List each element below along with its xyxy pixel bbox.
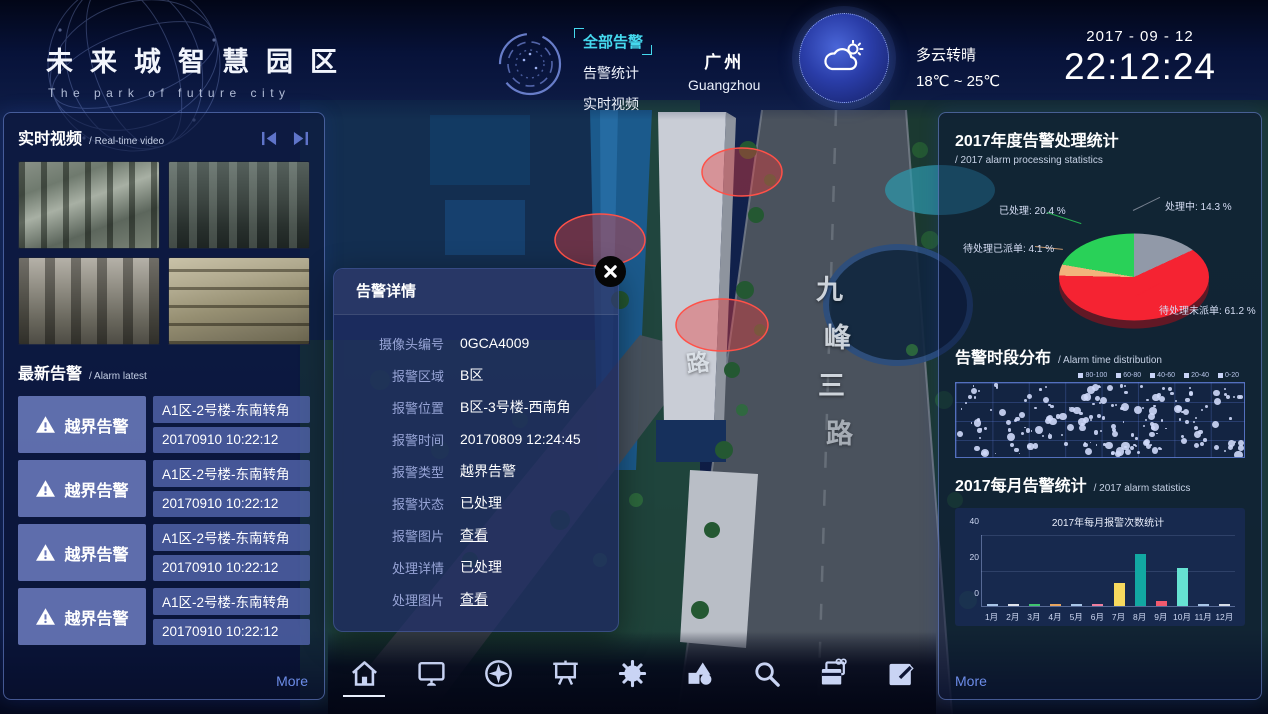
radar-rings-icon: [496, 30, 564, 98]
screen-button[interactable]: [541, 646, 589, 700]
scatter-legend-item: 20-40: [1184, 372, 1209, 379]
bar-x-labels: 1月2月3月4月5月6月7月8月9月10月11月12月: [981, 611, 1235, 623]
bar: [1198, 604, 1209, 606]
warning-icon: [35, 607, 56, 626]
left-panel: 实时视频 / Real-time video 最新告警 / Alarm la: [3, 112, 325, 700]
video-thumbnail[interactable]: [18, 257, 160, 345]
skip-next-icon: [291, 131, 310, 146]
pie-section-title: 2017年度告警处理统计: [955, 127, 1119, 151]
modal-field-label: 处理详情: [350, 558, 444, 577]
weather-text: 多云转晴 18℃ ~ 25℃: [916, 44, 1000, 90]
weather-temperature: 18℃ ~ 25℃: [916, 72, 1000, 90]
alarm-section-subtitle: / Alarm latest: [89, 371, 147, 382]
gear-icon: [617, 658, 648, 689]
modal-field-value: B区: [460, 365, 483, 385]
city-name-en: Guangzhou: [688, 77, 760, 93]
scatter-section-title: 告警时段分布: [955, 344, 1051, 368]
pie-label: 待处理未派单: 61.2 %: [1159, 302, 1256, 317]
scatter-section-subtitle: / Alarm time distribution: [1058, 355, 1162, 366]
bar: [1135, 554, 1146, 606]
shapes-button[interactable]: [675, 646, 723, 700]
monitor-icon: [416, 658, 447, 689]
bar-ytick: 0: [963, 588, 979, 598]
modal-field-label: 报警类型: [350, 462, 444, 481]
gear-button[interactable]: [608, 646, 656, 700]
bar-plot: [981, 535, 1235, 607]
bar-section-title: 2017每月告警统计: [955, 472, 1087, 496]
shapes-icon: [684, 658, 715, 689]
alarm-item[interactable]: 越界告警A1区-2号楼-东南转角20170910 10:22:12: [18, 524, 310, 581]
video-grid: [18, 161, 310, 345]
city-name-cn: 广州: [688, 48, 760, 73]
warning-icon: [35, 543, 56, 562]
weather-condition: 多云转晴: [916, 44, 1000, 65]
pie-label: 已处理: 20.4 %: [999, 202, 1066, 217]
app-title: 未来城智慧园区: [46, 40, 354, 79]
edit-icon: [885, 658, 916, 689]
bar: [1177, 568, 1188, 606]
close-icon: [604, 265, 617, 278]
nav-item-realtime-video[interactable]: 实时视频: [574, 91, 648, 117]
alarm-type: 越界告警: [18, 524, 146, 581]
bar: [1092, 604, 1103, 606]
modal-field-label: 报警图片: [350, 526, 444, 545]
scatter-legend-item: 80-100: [1078, 372, 1107, 379]
warning-icon: [35, 415, 56, 434]
weather-badge: [799, 13, 889, 103]
bar: [1156, 601, 1167, 606]
alarm-type: 越界告警: [18, 588, 146, 645]
alarm-more-link[interactable]: More: [276, 673, 308, 689]
nav-item-all-alarms[interactable]: 全部告警: [574, 28, 652, 55]
video-section-subtitle: / Real-time video: [89, 136, 164, 147]
home-icon: [349, 658, 380, 689]
scatter-legend: 80-10060-8040-6020-400-20: [955, 372, 1239, 379]
bar-ytick: 20: [963, 552, 979, 562]
search-icon: [751, 658, 782, 689]
bar-chart: 2017年每月报警次数统计 40 20 0 1月2月3月4月5月6月7月8月9月…: [955, 508, 1245, 626]
road-label-side: 路: [684, 343, 712, 380]
road-label-char: 九: [816, 268, 843, 307]
cards-button[interactable]: [809, 646, 857, 700]
view-link[interactable]: 查看: [460, 589, 488, 609]
alarm-type: 越界告警: [18, 460, 146, 517]
scatter-legend-item: 40-60: [1150, 372, 1175, 379]
compass-icon: [483, 658, 514, 689]
modal-field-value: 已处理: [460, 493, 502, 513]
alarm-location: A1区-2号楼-东南转角: [153, 588, 310, 615]
main-nav: 全部告警 告警统计 实时视频: [574, 28, 652, 117]
view-link[interactable]: 查看: [460, 525, 488, 545]
current-date: 2017 - 09 - 12: [1058, 28, 1222, 45]
road-label-char: 路: [826, 412, 853, 451]
city-block: 广州 Guangzhou: [688, 48, 760, 93]
alarm-item[interactable]: 越界告警A1区-2号楼-东南转角20170910 10:22:12: [18, 588, 310, 645]
scatter-legend-item: 60-80: [1116, 372, 1141, 379]
skip-prev-icon: [260, 131, 279, 146]
modal-field-value: B区-3号楼-西南角: [460, 397, 570, 417]
modal-field-value: 越界告警: [460, 461, 516, 481]
bar-section-subtitle: / 2017 alarm statistics: [1094, 483, 1191, 494]
road-label-char: 峰: [824, 316, 851, 355]
bar: [987, 604, 998, 606]
edit-button[interactable]: [876, 646, 924, 700]
alarm-time: 20170910 10:22:12: [153, 491, 310, 518]
current-time: 22:12:24: [1058, 46, 1222, 88]
modal-title: 告警详情: [334, 269, 618, 315]
alarm-location: A1区-2号楼-东南转角: [153, 396, 310, 423]
projection-screen-icon: [550, 658, 581, 689]
modal-field-value: 0GCA4009: [460, 335, 529, 351]
pie-label: 处理中: 14.3 %: [1165, 198, 1232, 213]
road-label-char: 三: [818, 364, 845, 403]
modal-field-label: 报警区域: [350, 366, 444, 385]
bar: [1029, 604, 1040, 606]
bar: [1114, 583, 1125, 606]
modal-field-value: 20170809 12:24:45: [460, 431, 581, 447]
smart-park-dashboard: { "header": { "title": "未来城智慧园区", "subti…: [0, 0, 1268, 714]
scatter-legend-item: 0-20: [1218, 372, 1239, 379]
alarm-time: 20170910 10:22:12: [153, 555, 310, 582]
alarm-type: 越界告警: [18, 396, 146, 453]
alarm-list: 越界告警A1区-2号楼-东南转角20170910 10:22:12越界告警A1区…: [18, 396, 310, 645]
stats-more-link[interactable]: More: [955, 673, 987, 689]
video-thumbnail[interactable]: [168, 257, 310, 345]
modal-field-label: 报警位置: [350, 398, 444, 417]
alarm-section-title: 最新告警: [18, 360, 82, 384]
bar: [1219, 604, 1230, 606]
alarm-detail-modal: 告警详情 摄像头编号0GCA4009报警区域B区报警位置B区-3号楼-西南角报警…: [333, 268, 619, 632]
alarm-item[interactable]: 越界告警A1区-2号楼-东南转角20170910 10:22:12: [18, 396, 310, 453]
modal-field-label: 摄像头编号: [350, 334, 444, 353]
alarm-location: A1区-2号楼-东南转角: [153, 460, 310, 487]
cards-icon: [818, 658, 849, 689]
cloud-sun-icon: [821, 40, 867, 76]
warning-icon: [35, 479, 56, 498]
bottom-toolbar: [328, 632, 936, 714]
alarm-location: A1区-2号楼-东南转角: [153, 524, 310, 551]
right-panel: 2017年度告警处理统计 / 2017 alarm processing sta…: [938, 112, 1262, 700]
nav-item-alarm-stats[interactable]: 告警统计: [574, 60, 648, 86]
home-button[interactable]: [340, 646, 388, 700]
modal-close-button[interactable]: [595, 256, 626, 287]
scatter-plot: [955, 382, 1245, 458]
pie-chart: 已处理: 20.4 % 处理中: 14.3 % 待处理已派单: 4.1 % 待处…: [955, 166, 1245, 338]
app-subtitle: The park of future city: [48, 86, 354, 100]
datetime-block: 2017 - 09 - 12 22:12:24: [1058, 28, 1222, 88]
alarm-item[interactable]: 越界告警A1区-2号楼-东南转角20170910 10:22:12: [18, 460, 310, 517]
bar: [1050, 604, 1061, 606]
video-section-title: 实时视频: [18, 125, 82, 149]
bar: [1008, 604, 1019, 606]
alarm-time: 20170910 10:22:12: [153, 427, 310, 454]
monitor-button[interactable]: [407, 646, 455, 700]
app-brand: 未来城智慧园区 The park of future city: [46, 40, 354, 100]
modal-field-label: 报警状态: [350, 494, 444, 513]
modal-field-label: 报警时间: [350, 430, 444, 449]
bar: [1071, 604, 1082, 606]
video-next-button[interactable]: [291, 131, 310, 146]
search-button[interactable]: [742, 646, 790, 700]
video-thumbnail[interactable]: [168, 161, 310, 249]
modal-body: 摄像头编号0GCA4009报警区域B区报警位置B区-3号楼-西南角报警时间201…: [334, 315, 618, 627]
bar-chart-title: 2017年每月报警次数统计: [981, 514, 1235, 529]
pie-label: 待处理已派单: 4.1 %: [963, 240, 1054, 255]
pie-section-subtitle: / 2017 alarm processing statistics: [955, 155, 1245, 166]
alarm-time: 20170910 10:22:12: [153, 619, 310, 646]
video-thumbnail[interactable]: [18, 161, 160, 249]
modal-field-value: 已处理: [460, 557, 502, 577]
pie-leader-line: [1133, 197, 1160, 211]
bar-ytick: 40: [963, 516, 979, 526]
compass-button[interactable]: [474, 646, 522, 700]
modal-field-label: 处理图片: [350, 590, 444, 609]
video-prev-button[interactable]: [260, 131, 279, 146]
